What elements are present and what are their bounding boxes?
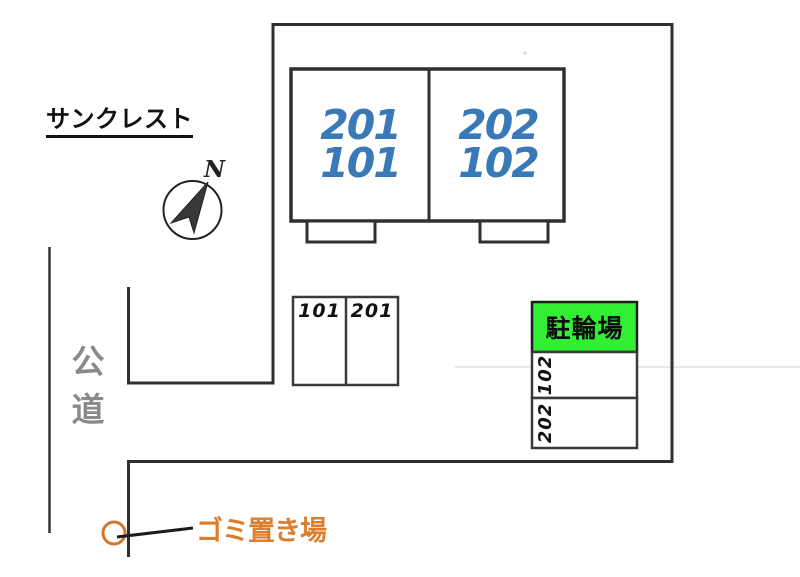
unit-number: 101	[291, 144, 429, 182]
public-road-label: 公道	[61, 344, 109, 440]
parking-space-label-201: 201	[346, 300, 398, 322]
parking-space-label-101: 101	[293, 300, 346, 322]
site-plan: サンクレスト N 201 101 202 102 101 201 駐輪場 102…	[0, 0, 800, 577]
parking-space-label-202: 202	[536, 393, 556, 453]
building-entrance-right	[480, 221, 548, 242]
garbage-area-label: ゴミ置き場	[196, 509, 326, 548]
building-entrance-left	[307, 221, 375, 242]
garbage-area-circle	[103, 522, 125, 544]
compass-north-label: N	[204, 156, 225, 183]
unit-number: 102	[429, 144, 567, 182]
north-arrow-icon	[171, 182, 208, 233]
site-plan-drawing	[0, 0, 800, 577]
building-unit-left: 201 101	[291, 106, 429, 182]
page-title: サンクレスト	[46, 99, 193, 138]
scan-artifact-dot	[523, 51, 527, 55]
building-unit-right: 202 102	[429, 106, 567, 182]
